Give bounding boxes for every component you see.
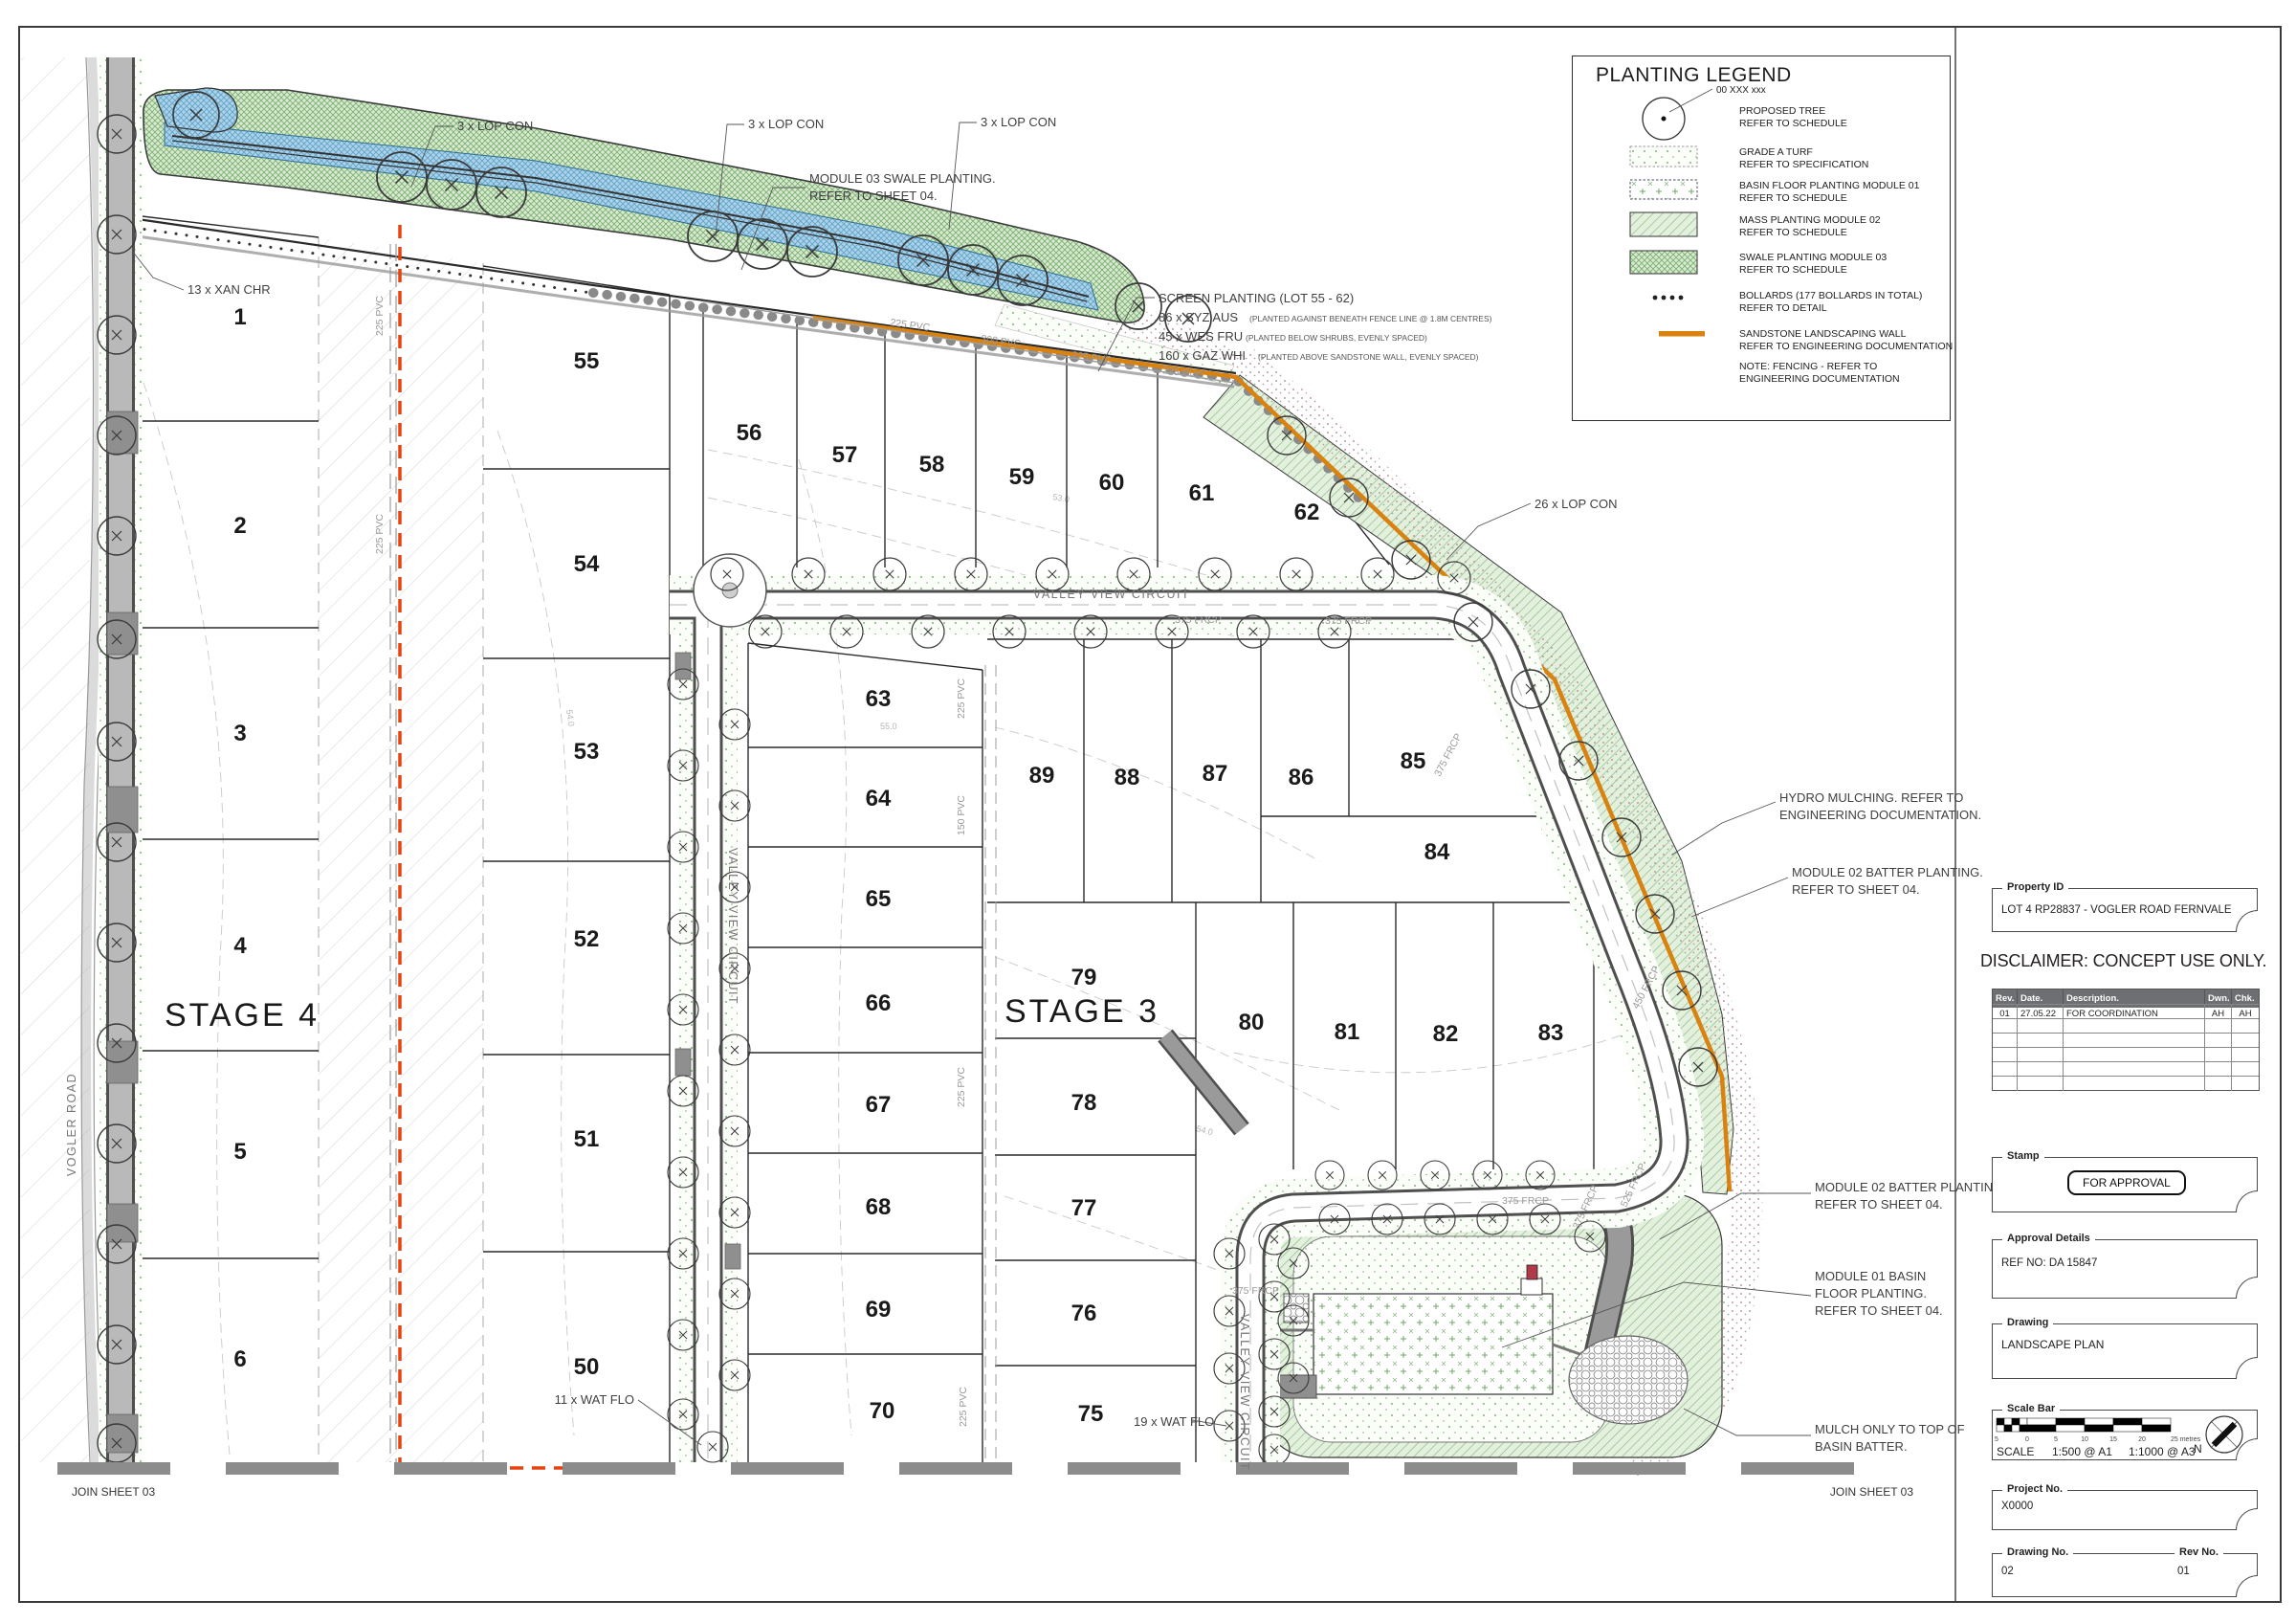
lot-number: 59 [1009, 464, 1035, 490]
rev-no-value: 01 [2177, 1566, 2190, 1577]
revision-table: Rev. Date. Description. Dwn. Chk. 01 27.… [1992, 989, 2260, 1091]
north-letter: N [2194, 1442, 2202, 1456]
callout-hydro-mulching: HYDRO MULCHING. REFER TO [1779, 790, 1963, 805]
callout-lop-con: 3 x LOP CON [748, 117, 824, 131]
rev-cell-empty [2064, 1076, 2205, 1091]
callout-screen-note: (PLANTED ABOVE SANDSTONE WALL, EVENLY SP… [1258, 352, 1479, 362]
lot-number: 67 [866, 1092, 892, 1118]
legend-item-label: BOLLARDS (177 BOLLARDS IN TOTAL) [1739, 290, 1922, 302]
lot-number: 5 [233, 1139, 246, 1165]
callout-swale-module: REFER TO SHEET 04. [809, 189, 938, 203]
legend-item-label: NOTE: FENCING - REFER TO [1739, 361, 1877, 373]
callout-mulch-note: BASIN BATTER. [1815, 1439, 1908, 1454]
rev-cell-empty [2232, 1033, 2259, 1048]
lot-number: 68 [866, 1194, 892, 1220]
lot-number: 88 [1115, 765, 1140, 790]
legend-symbols [1573, 56, 1726, 401]
property-id-label: Property ID [2002, 881, 2068, 893]
grade-a-turf-swatch [1630, 146, 1697, 167]
legend-item-label: REFER TO SCHEDULE [1739, 264, 1847, 277]
rev-cell-empty [2018, 1047, 2064, 1062]
pipe-label: 375 FRCP [1232, 1285, 1279, 1297]
proposed-tree-icon [1643, 89, 1712, 140]
lot-number: 76 [1071, 1301, 1097, 1326]
rev-cell-empty [2018, 1076, 2064, 1091]
lot-number: 81 [1335, 1019, 1360, 1045]
rev-cell-empty [2205, 1047, 2232, 1062]
drawing-no-label: Drawing No. [2002, 1546, 2073, 1558]
legend-item-label: REFER TO SCHEDULE [1739, 118, 1847, 130]
lot-number: 52 [574, 926, 600, 952]
rev-cell-empty [2018, 1018, 2064, 1034]
lot-number: 66 [866, 990, 892, 1016]
legend-item-label: PROPOSED TREE [1739, 105, 1825, 118]
bollards-icon [1653, 296, 1684, 300]
scale-tick: 15 [2109, 1436, 2117, 1443]
stage-4-label: STAGE 4 [165, 997, 320, 1034]
callout-lop-con: 3 x LOP CON [981, 115, 1056, 129]
lot-number: 80 [1239, 1010, 1265, 1035]
callout-xan-chr: 13 x XAN CHR [188, 282, 271, 297]
join-sheet-bar [57, 1462, 1854, 1475]
drawing-box: Drawing LANDSCAPE PLAN [1992, 1323, 2258, 1379]
callout-screen-item: 160 x GAZ WHI [1159, 348, 1246, 363]
drawing-no-box: Drawing No. Rev No. 02 01 [1992, 1553, 2258, 1597]
lot-number: 82 [1433, 1021, 1459, 1047]
callout-hydro-mulching: ENGINEERING DOCUMENTATION. [1779, 808, 1981, 822]
basin-floor-planting-area [1314, 1294, 1553, 1394]
property-id-box: Property ID LOT 4 RP28837 - VOGLER ROAD … [1992, 888, 2258, 932]
rev-cell-empty [2205, 1076, 2232, 1091]
contour-label: 54.0 [1196, 1123, 1214, 1137]
callout-batter-planting: MODULE 02 BATTER PLANTING. [1815, 1180, 2006, 1194]
lot-number: 87 [1203, 761, 1228, 787]
callout-basin-floor: REFER TO SHEET 04. [1815, 1303, 1943, 1318]
project-no-box: Project No. X0000 [1992, 1490, 2258, 1530]
scale-tick: 20 [2138, 1436, 2146, 1443]
lot-number: 75 [1078, 1401, 1104, 1427]
scale-tick: 0 [2025, 1436, 2029, 1443]
lot-number: 64 [866, 786, 892, 811]
join-sheet-label-right: JOIN SHEET 03 [1830, 1485, 1913, 1499]
north-arrow-icon: N [2192, 1412, 2251, 1458]
valley-view-circuit-label: VALLEY VIEW CIRCUIT [1238, 1314, 1251, 1471]
plan-drawing: 54.0 53.0 55.0 54.0 [0, 0, 2296, 1623]
lot-number: 1 [233, 304, 246, 330]
lot-number: 69 [866, 1297, 892, 1323]
west-margin-hatch [21, 57, 106, 1462]
lot-number: 4 [233, 933, 247, 959]
lot-number: 50 [574, 1354, 600, 1380]
basin-floor-swatch [1630, 180, 1697, 199]
lot-number: 77 [1071, 1195, 1097, 1221]
lot-number: 63 [866, 686, 892, 712]
sandstone-wall-icon [1659, 331, 1705, 337]
rev-cell-empty [2064, 1061, 2205, 1077]
lot-number: 61 [1189, 480, 1215, 506]
rev-cell-empty [1993, 1033, 2018, 1048]
scale-a1: 1:500 @ A1 [2052, 1445, 2112, 1458]
lot-number: 60 [1099, 470, 1125, 496]
property-id-value: LOT 4 RP28837 - VOGLER ROAD FERNVALE [2001, 904, 2232, 916]
approval-ref-value: REF NO: DA 15847 [2001, 1257, 2097, 1269]
legend-item-label: REFER TO SPECIFICATION [1739, 159, 1868, 171]
swale-planting-swatch [1630, 251, 1697, 274]
project-no-label: Project No. [2002, 1483, 2067, 1495]
planting-legend: PLANTING LEGEND 00 XXX xxx PROPOSED TREE… [1572, 56, 1951, 421]
callout-batter-planting: REFER TO SHEET 04. [1815, 1197, 1943, 1212]
legend-item-label: MASS PLANTING MODULE 02 [1739, 214, 1881, 227]
contour-label: 53.0 [1052, 492, 1071, 504]
callout-wat-flo: 11 x WAT FLO [555, 1392, 634, 1407]
pipe-label: 375 FRCP [1432, 731, 1465, 778]
scale-a3: 1:1000 @ A3 [2129, 1445, 2196, 1458]
callout-screen-note: (PLANTED AGAINST BENEATH FENCE LINE @ 1.… [1249, 314, 1492, 323]
legend-item-label: SWALE PLANTING MODULE 03 [1739, 252, 1887, 264]
legend-item-label: REFER TO DETAIL [1739, 302, 1827, 315]
callout-basin-floor: FLOOR PLANTING. [1815, 1286, 1927, 1301]
stamp-label: Stamp [2002, 1150, 2044, 1162]
scale-bar-box: Scale Bar 5 0 5 10 15 20 25 metres SCALE… [1992, 1410, 2258, 1460]
rev-cell-empty [2232, 1061, 2259, 1077]
approval-details-label: Approval Details [2002, 1233, 2095, 1244]
rev-cell-empty [2205, 1033, 2232, 1048]
rev-cell-empty [1993, 1018, 2018, 1034]
legend-item-label: REFER TO SCHEDULE [1739, 227, 1847, 239]
rev-cell-empty [2064, 1047, 2205, 1062]
landscape-plan-sheet: 54.0 53.0 55.0 54.0 [0, 0, 2296, 1623]
legend-item-label: GRADE A TURF [1739, 146, 1813, 159]
pipe-label: 375 FRCP [1175, 614, 1222, 626]
scale-word: SCALE [1997, 1445, 2034, 1458]
callout-lop-con-26: 26 x LOP CON [1534, 497, 1617, 511]
rev-cell-empty [2064, 1033, 2205, 1048]
service-lines [396, 244, 1234, 1462]
rev-cell-empty [1993, 1076, 2018, 1091]
pipe-label: 375 FRCP [1325, 615, 1372, 627]
lot-number: 2 [233, 513, 246, 539]
scale-bar-label: Scale Bar [2002, 1403, 2060, 1414]
pipe-label: 225 PVC [374, 514, 386, 554]
lot-number: 62 [1294, 500, 1320, 525]
contour-label: 54.0 [564, 709, 576, 727]
lot-number: 58 [919, 452, 945, 478]
lot-number: 65 [866, 886, 892, 912]
approval-stamp: FOR APPROVAL [2067, 1170, 2186, 1195]
pipe-label: 225 PVC [956, 1067, 967, 1107]
callout-screen-item: 45 x WES FRU [1159, 329, 1243, 344]
lot-number: 57 [832, 442, 858, 468]
lot-number: 83 [1538, 1020, 1564, 1046]
callout-screen-planting: SCREEN PLANTING (LOT 55 - 62) [1159, 291, 1354, 305]
rev-cell-empty [2205, 1018, 2232, 1034]
pipe-label: 375 FRCP [1502, 1195, 1549, 1207]
legend-item-label: BASIN FLOOR PLANTING MODULE 01 [1739, 180, 1919, 192]
pipe-label: 150 PVC [956, 795, 967, 835]
disclaimer-text: DISCLAIMER: CONCEPT USE ONLY. [1980, 951, 2267, 971]
callout-batter-planting: MODULE 02 BATTER PLANTING. [1792, 865, 1983, 879]
valley-view-circuit-label: VALLEY VIEW CIRCUIT [726, 848, 740, 1005]
lot-number: 84 [1424, 839, 1450, 865]
mass-planting-swatch [1630, 212, 1697, 236]
lot-number: 85 [1401, 748, 1426, 774]
rev-cell-empty [2232, 1076, 2259, 1091]
rev-cell-empty [1993, 1061, 2018, 1077]
swale-inlet [155, 88, 237, 132]
contour-label: 55.0 [880, 722, 897, 731]
project-no-value: X0000 [2001, 1501, 2033, 1512]
lot-number: 56 [737, 420, 762, 446]
drawing-label: Drawing [2002, 1317, 2053, 1328]
lot-number: 53 [574, 739, 600, 765]
rev-cell-empty [2232, 1047, 2259, 1062]
callout-screen-note: (PLANTED BELOW SHRUBS, EVENLY SPACED) [1246, 333, 1427, 343]
rev-cell-empty [1993, 1047, 2018, 1062]
lot-number: 79 [1071, 965, 1097, 990]
rev-cell-empty [2018, 1033, 2064, 1048]
lot-number: 3 [233, 721, 246, 746]
callout-basin-floor: MODULE 01 BASIN [1815, 1269, 1926, 1283]
rev-no-label: Rev No. [2175, 1546, 2223, 1558]
rev-cell-empty [2232, 1018, 2259, 1034]
lot-number: 54 [574, 551, 600, 577]
lot-number: 89 [1029, 763, 1055, 789]
callout-wat-flo: 19 x WAT FLO [1134, 1414, 1214, 1429]
basin-outlet-structure [1527, 1265, 1537, 1279]
pipe-label: 225 PVC [958, 1387, 969, 1427]
rev-cell-empty [2064, 1018, 2205, 1034]
scale-tick: 10 [2081, 1436, 2088, 1443]
stage-3-label: STAGE 3 [1004, 993, 1159, 1030]
legend-item-label: REFER TO ENGINEERING DOCUMENTATION [1739, 341, 1953, 353]
vogler-road-label: VOGLER ROAD [65, 1073, 78, 1176]
rev-cell-empty [2205, 1061, 2232, 1077]
lot-number: 86 [1289, 765, 1314, 790]
legend-item-label: SANDSTONE LANDSCAPING WALL [1739, 328, 1906, 341]
callout-screen-item: 86 x SYZ AUS [1159, 310, 1238, 324]
stamp-box: Stamp FOR APPROVAL [1992, 1157, 2258, 1212]
legend-item-label: ENGINEERING DOCUMENTATION [1739, 373, 1900, 386]
callout-lop-con: 3 x LOP CON [457, 119, 533, 133]
lot-number: 70 [870, 1398, 895, 1424]
scale-tick: 5 [2054, 1436, 2058, 1443]
drawing-no-value: 02 [2001, 1566, 2014, 1577]
rev-cell-empty [2018, 1061, 2064, 1077]
legend-item-label: REFER TO SCHEDULE [1739, 192, 1847, 205]
road-stub [1165, 1035, 1242, 1129]
rock-scour-protection [1569, 1336, 1688, 1424]
scale-tick: 5 [1995, 1436, 1998, 1443]
lot-number: 6 [233, 1346, 246, 1372]
pipe-label: 225 PVC [374, 296, 386, 336]
approval-details-box: Approval Details REF NO: DA 15847 [1992, 1239, 2258, 1299]
lot-number: 55 [574, 348, 600, 374]
callout-batter-planting: REFER TO SHEET 04. [1792, 882, 1920, 897]
lot-number: 78 [1071, 1090, 1097, 1116]
drawing-title-value: LANDSCAPE PLAN [2001, 1338, 2104, 1351]
join-sheet-label-left: JOIN SHEET 03 [72, 1485, 155, 1499]
pipe-label: 225 PVC [956, 678, 967, 719]
valley-view-circuit-label: VALLEY VIEW CIRCUIT [1033, 588, 1190, 601]
lot-number: 51 [574, 1126, 600, 1152]
callout-swale-module: MODULE 03 SWALE PLANTING. [809, 171, 996, 186]
callout-mulch-note: MULCH ONLY TO TOP OF [1815, 1422, 1965, 1436]
